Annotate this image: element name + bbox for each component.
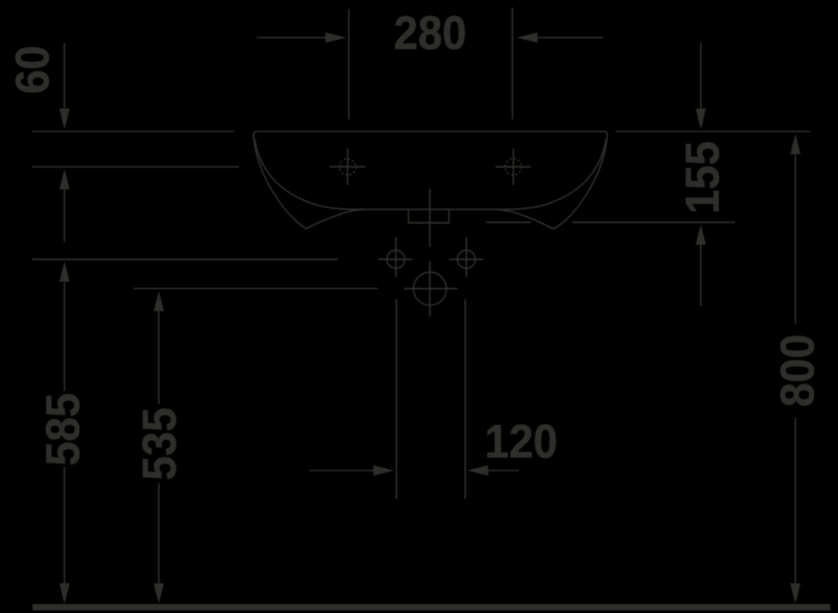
svg-text:800: 800: [771, 334, 824, 407]
svg-text:120: 120: [485, 415, 558, 468]
svg-text:280: 280: [394, 6, 467, 59]
svg-text:535: 535: [133, 407, 186, 480]
svg-text:155: 155: [676, 141, 729, 214]
svg-text:60: 60: [6, 45, 59, 94]
svg-text:585: 585: [36, 393, 89, 466]
